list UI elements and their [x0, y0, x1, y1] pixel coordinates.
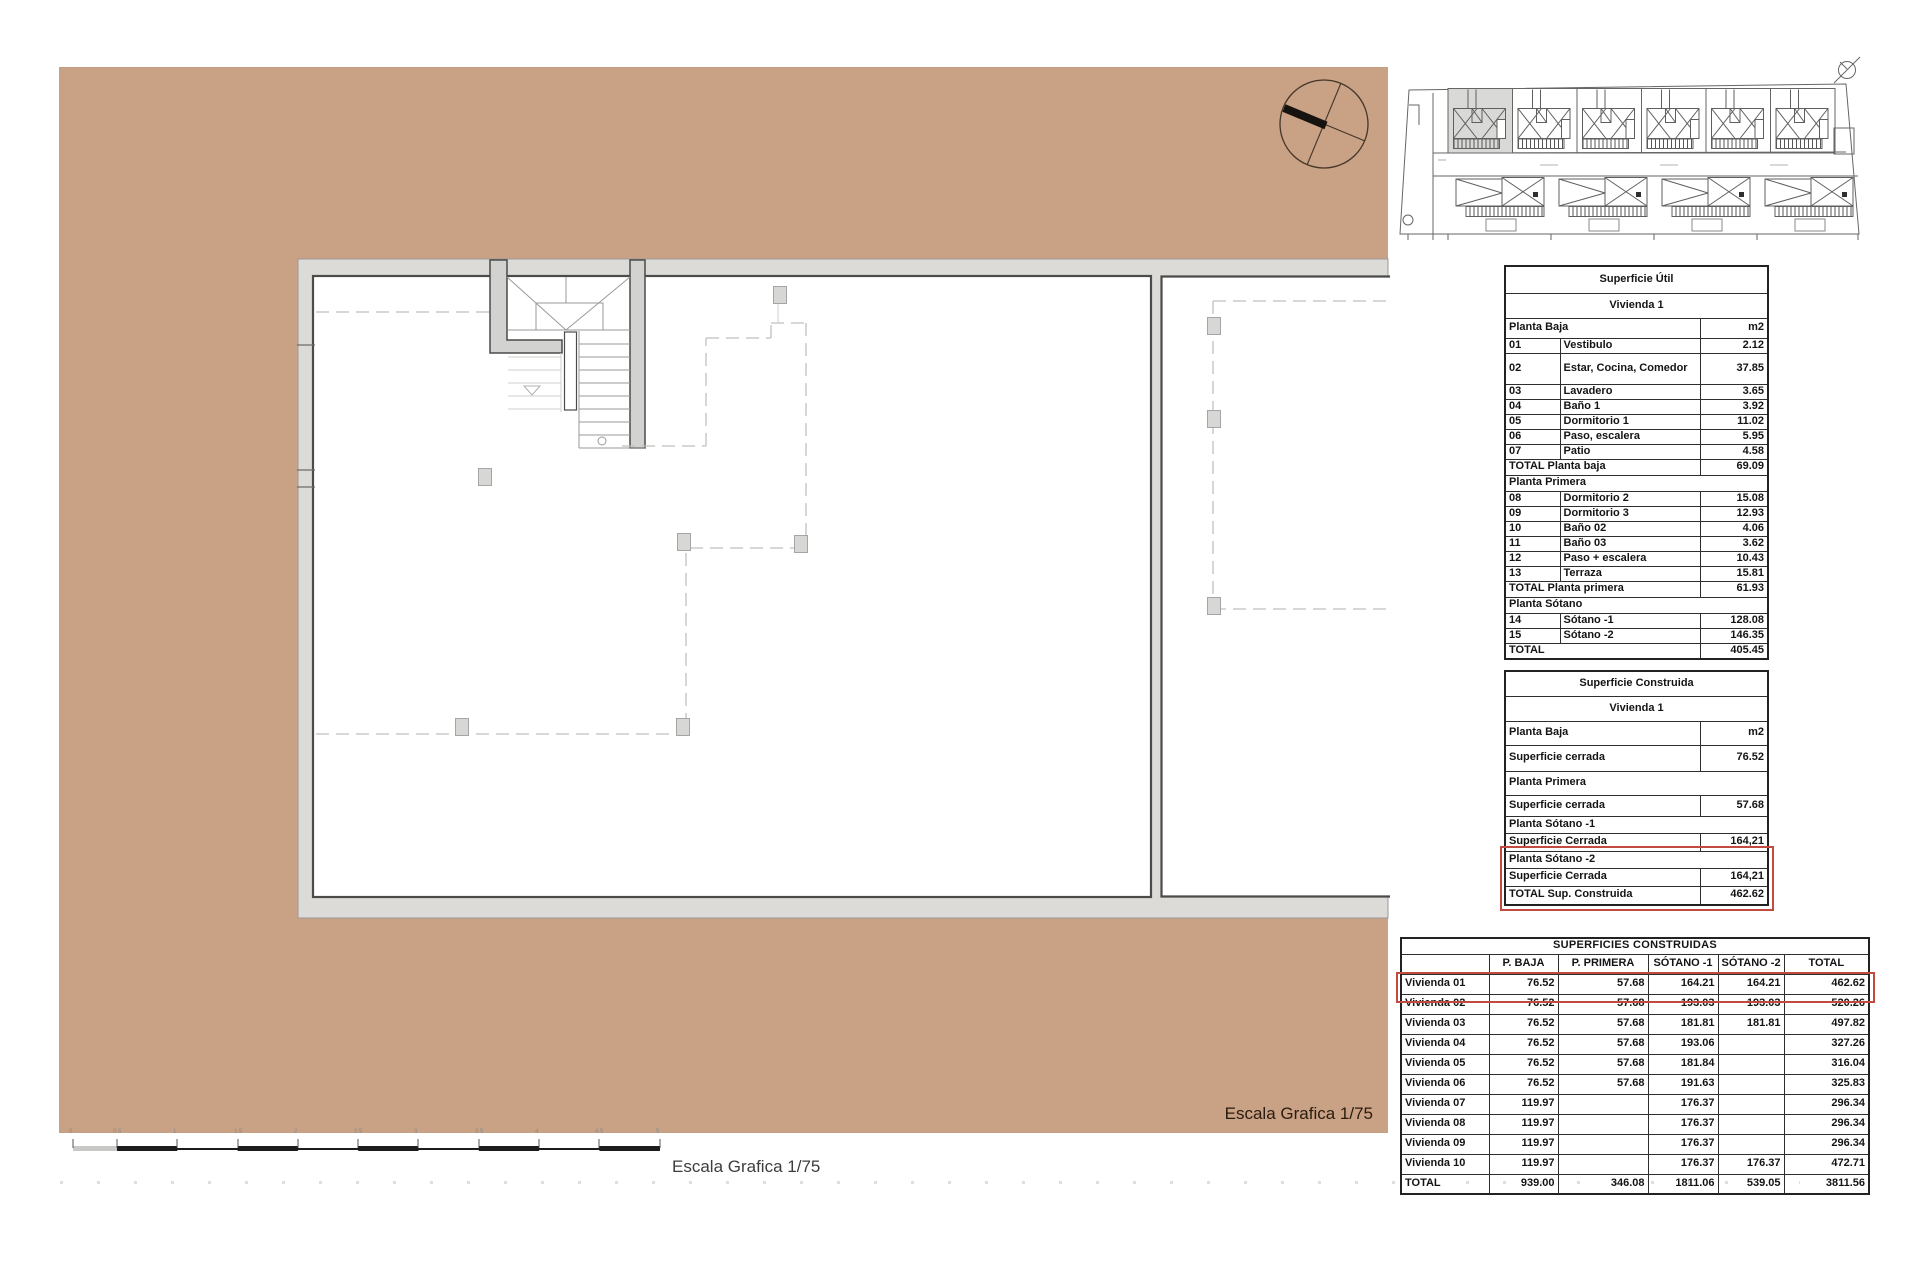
cell: Vivienda 08	[1401, 1114, 1489, 1134]
cell: Superficie Útil	[1505, 266, 1768, 293]
cell: 497.82	[1784, 1014, 1869, 1034]
table-row: Planta Bajam2	[1505, 318, 1768, 338]
cell: TOTAL	[1784, 954, 1869, 974]
cell: 164.21	[1718, 974, 1784, 994]
cell: 193.06	[1648, 1034, 1718, 1054]
table-row: 06Paso, escalera5.95	[1505, 429, 1768, 444]
cell: 04	[1505, 399, 1560, 414]
cell: 57.68	[1558, 1054, 1648, 1074]
cell: Vivienda 05	[1401, 1054, 1489, 1074]
cell: TOTAL	[1401, 1174, 1489, 1194]
cell: 76.52	[1489, 1074, 1558, 1094]
cell: Baño 03	[1560, 536, 1700, 551]
cell	[1558, 1134, 1648, 1154]
cell: 181.81	[1648, 1014, 1718, 1034]
cell: 176.37	[1648, 1094, 1718, 1114]
cell: Dormitorio 1	[1560, 414, 1700, 429]
cell: 119.97	[1489, 1114, 1558, 1134]
cell: 296.34	[1784, 1134, 1869, 1154]
table-row: TOTAL Planta primera61.93	[1505, 581, 1768, 597]
cell: 3.65	[1700, 384, 1768, 399]
table-row: Planta Sótano -1	[1505, 816, 1768, 833]
scale-tick-label: 1.5	[234, 1129, 242, 1135]
table-row: Planta Primera	[1505, 771, 1768, 795]
superficie-construida-table: Superficie ConstruidaVivienda 1Planta Ba…	[1504, 670, 1767, 906]
cell: 15	[1505, 628, 1560, 643]
scale-tick-label: 2	[294, 1129, 297, 1135]
cell: 11.02	[1700, 414, 1768, 429]
cell: 164.21	[1648, 974, 1718, 994]
table-row: Planta Primera	[1505, 475, 1768, 491]
site-north-icon	[1834, 57, 1860, 83]
cell	[1718, 1034, 1784, 1054]
table-row: 09Dormitorio 312.93	[1505, 506, 1768, 521]
cell: 4.06	[1700, 521, 1768, 536]
cell: 119.97	[1489, 1154, 1558, 1174]
cell: 37.85	[1700, 353, 1768, 384]
cell: 462.62	[1784, 974, 1869, 994]
table-row: Superficie cerrada76.52	[1505, 745, 1768, 771]
cell: Superficie Cerrada	[1505, 833, 1700, 851]
cell: 57.68	[1700, 795, 1768, 816]
cell: 193.03	[1648, 994, 1718, 1014]
cell: 191.63	[1648, 1074, 1718, 1094]
table-row: TOTAL Planta baja69.09	[1505, 459, 1768, 475]
scale-tick-label: 4.5	[595, 1129, 603, 1135]
superficies-construidas-table: SUPERFICIES CONSTRUIDASP. BAJAP. PRIMERA…	[1400, 937, 1868, 1195]
table-row: 01Vestibulo2.12	[1505, 338, 1768, 353]
cell: 10.43	[1700, 551, 1768, 566]
cell: 176.37	[1648, 1154, 1718, 1174]
cell: Planta Sótano	[1505, 597, 1768, 613]
table-row: 02Estar, Cocina, Comedor37.85	[1505, 353, 1768, 384]
cell: 3.92	[1700, 399, 1768, 414]
scale-tick-label: 3	[414, 1129, 417, 1135]
cell	[1718, 1074, 1784, 1094]
cell	[1558, 1094, 1648, 1114]
table-row: 11Baño 033.62	[1505, 536, 1768, 551]
cell: 57.68	[1558, 1014, 1648, 1034]
cell: Sótano -2	[1560, 628, 1700, 643]
cell: 61.93	[1700, 581, 1768, 597]
cell: Vivienda 1	[1505, 293, 1768, 318]
cell	[1558, 1114, 1648, 1134]
scale-tick-label: 4	[535, 1129, 538, 1135]
cell: Vivienda 03	[1401, 1014, 1489, 1034]
cell: Superficie cerrada	[1505, 795, 1700, 816]
cell: 520.26	[1784, 994, 1869, 1014]
cell: 939.00	[1489, 1174, 1558, 1194]
table-row: Vivienda 0576.5257.68181.84316.04	[1401, 1054, 1869, 1074]
cell: TOTAL Planta baja	[1505, 459, 1700, 475]
table-row: Vivienda 0676.5257.68191.63325.83	[1401, 1074, 1869, 1094]
table-row: Vivienda 07119.97176.37296.34	[1401, 1094, 1869, 1114]
cell: 146.35	[1700, 628, 1768, 643]
cell: 176.37	[1648, 1134, 1718, 1154]
cell	[1718, 1134, 1784, 1154]
table-row: 04Baño 13.92	[1505, 399, 1768, 414]
cell: m2	[1700, 721, 1768, 745]
table-row: Superficie cerrada57.68	[1505, 795, 1768, 816]
table-row: Vivienda 0176.5257.68164.21164.21462.62	[1401, 974, 1869, 994]
scale-tick-label: 2.5	[354, 1129, 362, 1135]
cell: 69.09	[1700, 459, 1768, 475]
floor-plan	[59, 67, 1390, 1133]
cell: Planta Primera	[1505, 475, 1768, 491]
cell	[1401, 954, 1489, 974]
cell: m2	[1700, 318, 1768, 338]
cell: Superficie cerrada	[1505, 745, 1700, 771]
cell: 01	[1505, 338, 1560, 353]
unit-1-outline	[313, 276, 1151, 897]
cell: 09	[1505, 506, 1560, 521]
cell: 03	[1505, 384, 1560, 399]
cell: 462.62	[1700, 886, 1768, 905]
table-row: Planta Sótano	[1505, 597, 1768, 613]
cell: 15.81	[1700, 566, 1768, 581]
cell: 76.52	[1489, 1034, 1558, 1054]
table-row: Vivienda 08119.97176.37296.34	[1401, 1114, 1869, 1134]
scale-tick-label: 5	[656, 1129, 659, 1135]
cell: Planta Baja	[1505, 318, 1700, 338]
scale-tick-label: 0.5	[113, 1129, 121, 1135]
cell: TOTAL Planta primera	[1505, 581, 1700, 597]
table-row: TOTAL939.00346.081811.06539.053811.56	[1401, 1174, 1869, 1194]
cell: 181.84	[1648, 1054, 1718, 1074]
cell: SUPERFICIES CONSTRUIDAS	[1401, 938, 1869, 954]
cell: 2.12	[1700, 338, 1768, 353]
cell: Planta Sótano -1	[1505, 816, 1768, 833]
scale-tick-label: 3.5	[475, 1129, 483, 1135]
cell: Terraza	[1560, 566, 1700, 581]
scale-tick-label: 0	[69, 1129, 72, 1135]
cell: 119.97	[1489, 1134, 1558, 1154]
cell: 05	[1505, 414, 1560, 429]
cell: 08	[1505, 491, 1560, 506]
table-row: TOTAL405.45	[1505, 643, 1768, 659]
table-row: 10Baño 024.06	[1505, 521, 1768, 536]
cell: 472.71	[1784, 1154, 1869, 1174]
table-row: Superficie Cerrada164,21	[1505, 833, 1768, 851]
cell: 3.62	[1700, 536, 1768, 551]
scale-caption-plan: Escala Grafica 1/75	[1153, 1104, 1373, 1124]
cell: 76.52	[1489, 974, 1558, 994]
cell: SÓTANO -2	[1718, 954, 1784, 974]
cell: 11	[1505, 536, 1560, 551]
cell: 57.68	[1558, 1034, 1648, 1054]
scale-caption-bottom: Escala Grafica 1/75	[672, 1157, 820, 1177]
unit-2-outline	[1162, 277, 1391, 897]
cell: 12	[1505, 551, 1560, 566]
cell: 10	[1505, 521, 1560, 536]
cell: 296.34	[1784, 1114, 1869, 1134]
cell: P. PRIMERA	[1558, 954, 1648, 974]
table-row: P. BAJAP. PRIMERASÓTANO -1SÓTANO -2TOTAL	[1401, 954, 1869, 974]
cell: 13	[1505, 566, 1560, 581]
cell: 76.52	[1700, 745, 1768, 771]
table-row: Vivienda 0276.5257.68193.03193.03520.26	[1401, 994, 1869, 1014]
cell: 14	[1505, 613, 1560, 628]
cell: SÓTANO -1	[1648, 954, 1718, 974]
cell: 316.04	[1784, 1054, 1869, 1074]
cell: 76.52	[1489, 994, 1558, 1014]
cell: 325.83	[1784, 1074, 1869, 1094]
table-row: Vivienda 10119.97176.37176.37472.71	[1401, 1154, 1869, 1174]
cell: Vivienda 07	[1401, 1094, 1489, 1114]
table-row: 07Patio4.58	[1505, 444, 1768, 459]
table-row: Vivienda 1	[1505, 293, 1768, 318]
cell: Planta Sótano -2	[1505, 851, 1768, 868]
table-row: TOTAL Sup. Construida462.62	[1505, 886, 1768, 905]
cell: Vivienda 04	[1401, 1034, 1489, 1054]
cell: Paso, escalera	[1560, 429, 1700, 444]
cell: 164,21	[1700, 833, 1768, 851]
cell: Superficie Construida	[1505, 671, 1768, 696]
stair-handrail	[565, 332, 577, 410]
cell: 164,21	[1700, 868, 1768, 886]
cell: 296.34	[1784, 1094, 1869, 1114]
scale-tick-label: 1	[173, 1129, 176, 1135]
cell: Dormitorio 3	[1560, 506, 1700, 521]
cell: 119.97	[1489, 1094, 1558, 1114]
cell: 15.08	[1700, 491, 1768, 506]
table-row: SUPERFICIES CONSTRUIDAS	[1401, 938, 1869, 954]
table-row: 08Dormitorio 215.08	[1505, 491, 1768, 506]
cell: Sótano -1	[1560, 613, 1700, 628]
table-row: 15Sótano -2146.35	[1505, 628, 1768, 643]
cell: Planta Baja	[1505, 721, 1700, 745]
cell: 76.52	[1489, 1014, 1558, 1034]
cell: 346.08	[1558, 1174, 1648, 1194]
drawing-sheet: Escala Grafica 1/75 Escala Grafica 1/75 …	[0, 0, 1920, 1280]
cell: 5.95	[1700, 429, 1768, 444]
cell: 07	[1505, 444, 1560, 459]
cell: 57.68	[1558, 1074, 1648, 1094]
cell	[1558, 1154, 1648, 1174]
table-row: Vivienda 0476.5257.68193.06327.26	[1401, 1034, 1869, 1054]
cell: Vivienda 10	[1401, 1154, 1489, 1174]
cell: 405.45	[1700, 643, 1768, 659]
cell: 539.05	[1718, 1174, 1784, 1194]
cell: TOTAL	[1505, 643, 1700, 659]
table-row: Planta Sótano -2	[1505, 851, 1768, 868]
cell: 128.08	[1700, 613, 1768, 628]
table-row: Superficie Cerrada164,21	[1505, 868, 1768, 886]
table-row: Vivienda 0376.5257.68181.81181.81497.82	[1401, 1014, 1869, 1034]
cell: 57.68	[1558, 994, 1648, 1014]
cell: 4.58	[1700, 444, 1768, 459]
cell: 1811.06	[1648, 1174, 1718, 1194]
cell: 327.26	[1784, 1034, 1869, 1054]
table-row: 14Sótano -1128.08	[1505, 613, 1768, 628]
cell: Lavadero	[1560, 384, 1700, 399]
cell: 176.37	[1648, 1114, 1718, 1134]
cell: 176.37	[1718, 1154, 1784, 1174]
cell	[1718, 1114, 1784, 1134]
table-row: Vivienda 09119.97176.37296.34	[1401, 1134, 1869, 1154]
table-row: Superficie Construida	[1505, 671, 1768, 696]
scale-bar	[73, 1139, 660, 1151]
table-row: Superficie Útil	[1505, 266, 1768, 293]
cell: 193.03	[1718, 994, 1784, 1014]
cell: Paso + escalera	[1560, 551, 1700, 566]
table-row: 13Terraza15.81	[1505, 566, 1768, 581]
cell: Superficie Cerrada	[1505, 868, 1700, 886]
cell: Vivienda 01	[1401, 974, 1489, 994]
cell: Estar, Cocina, Comedor	[1560, 353, 1700, 384]
cell: Vivienda 09	[1401, 1134, 1489, 1154]
cell: 76.52	[1489, 1054, 1558, 1074]
cell: 12.93	[1700, 506, 1768, 521]
cell: Vivienda 02	[1401, 994, 1489, 1014]
cell: Dormitorio 2	[1560, 491, 1700, 506]
table-row: 03Lavadero3.65	[1505, 384, 1768, 399]
cell: Planta Primera	[1505, 771, 1768, 795]
cell: TOTAL Sup. Construida	[1505, 886, 1700, 905]
cell: 181.81	[1718, 1014, 1784, 1034]
cell: 3811.56	[1784, 1174, 1869, 1194]
cell: 57.68	[1558, 974, 1648, 994]
table-row: Vivienda 1	[1505, 696, 1768, 721]
cell: Vivienda 06	[1401, 1074, 1489, 1094]
cell: Baño 1	[1560, 399, 1700, 414]
cell	[1718, 1054, 1784, 1074]
cell: Vivienda 1	[1505, 696, 1768, 721]
cell	[1718, 1094, 1784, 1114]
site-plan-thumbnail	[1400, 57, 1860, 240]
cell: Baño 02	[1560, 521, 1700, 536]
cell: 02	[1505, 353, 1560, 384]
table-row: Planta Bajam2	[1505, 721, 1768, 745]
table-row: 12Paso + escalera10.43	[1505, 551, 1768, 566]
superficie-util-table: Superficie ÚtilVivienda 1Planta Bajam201…	[1504, 265, 1767, 660]
cell: P. BAJA	[1489, 954, 1558, 974]
table-row: 05Dormitorio 111.02	[1505, 414, 1768, 429]
cell: 06	[1505, 429, 1560, 444]
cell: Vestibulo	[1560, 338, 1700, 353]
cell: Patio	[1560, 444, 1700, 459]
